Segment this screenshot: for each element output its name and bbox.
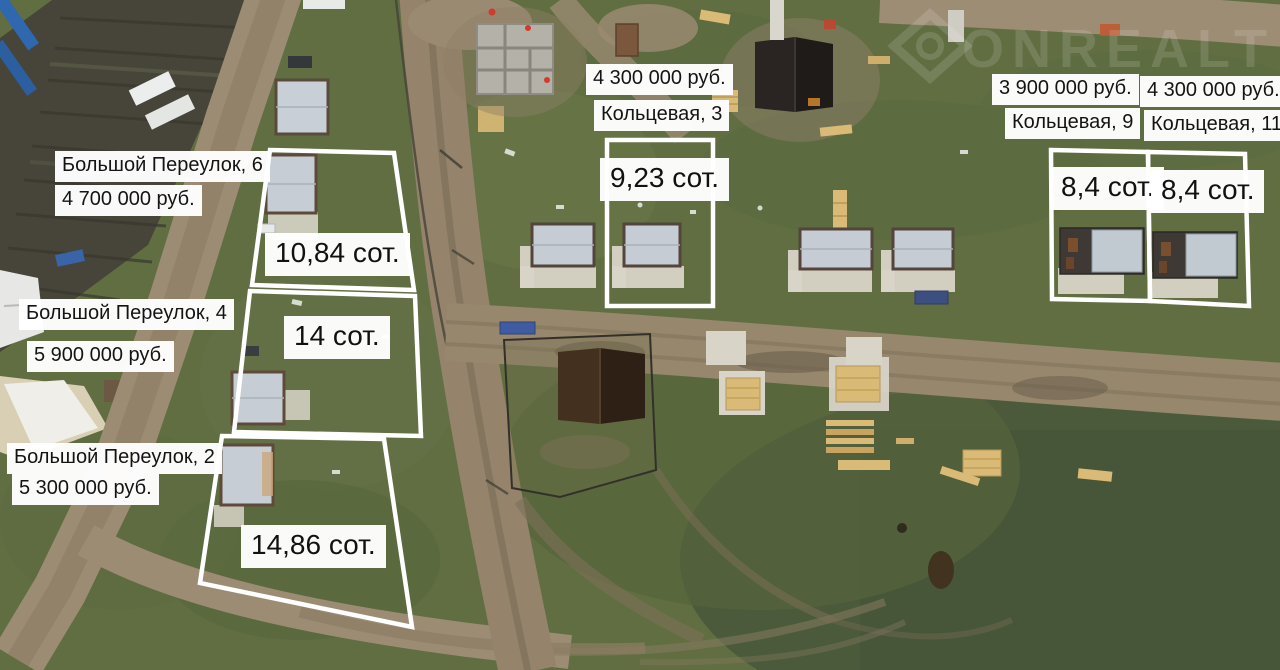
address-label-bolshoy-4: Большой Переулок, 4 [19, 299, 234, 330]
address-label-bolshoy-6: Большой Переулок, 6 [55, 151, 270, 182]
price-label-koltsevaya-11: 4 300 000 руб. [1140, 76, 1280, 107]
aerial-photo-listing: ONREALT Большой Переулок, 6 4 700 000 ру… [0, 0, 1280, 670]
price-label-bolshoy-6: 4 700 000 руб. [55, 185, 202, 216]
address-label-koltsevaya-11: Кольцевая, 11 [1144, 110, 1280, 141]
house [520, 224, 596, 288]
area-label-14-86: 14,86 сот. [241, 525, 386, 568]
house [612, 224, 684, 288]
area-label-14: 14 сот. [284, 316, 390, 359]
area-label-10-84: 10,84 сот. [265, 233, 410, 276]
watermark-text: ONREALT [962, 18, 1275, 80]
price-label-koltsevaya-9: 3 900 000 руб. [992, 74, 1139, 105]
address-label-koltsevaya-9: Кольцевая, 9 [1005, 108, 1140, 139]
address-label-bolshoy-2: Большой Переулок, 2 [7, 443, 222, 474]
house [881, 229, 955, 292]
area-label-8-4-a: 8,4 сот. [1051, 167, 1164, 210]
car [288, 56, 312, 68]
fenced-construction-plot [504, 334, 656, 497]
dark-roof-house [755, 37, 833, 112]
address-label-koltsevaya-3: Кольцевая, 3 [594, 100, 729, 131]
container [915, 291, 948, 304]
price-label-bolshoy-2: 5 300 000 руб. [12, 474, 159, 505]
house [788, 229, 872, 292]
price-label-bolshoy-4: 5 900 000 руб. [27, 341, 174, 372]
area-label-9-23: 9,23 сот. [600, 158, 729, 201]
brown-shed [616, 24, 638, 56]
container [500, 322, 535, 334]
area-label-8-4-b: 8,4 сот. [1151, 170, 1264, 213]
brown-roof-house [558, 348, 645, 424]
price-label-koltsevaya-3: 4 300 000 руб. [586, 64, 733, 95]
